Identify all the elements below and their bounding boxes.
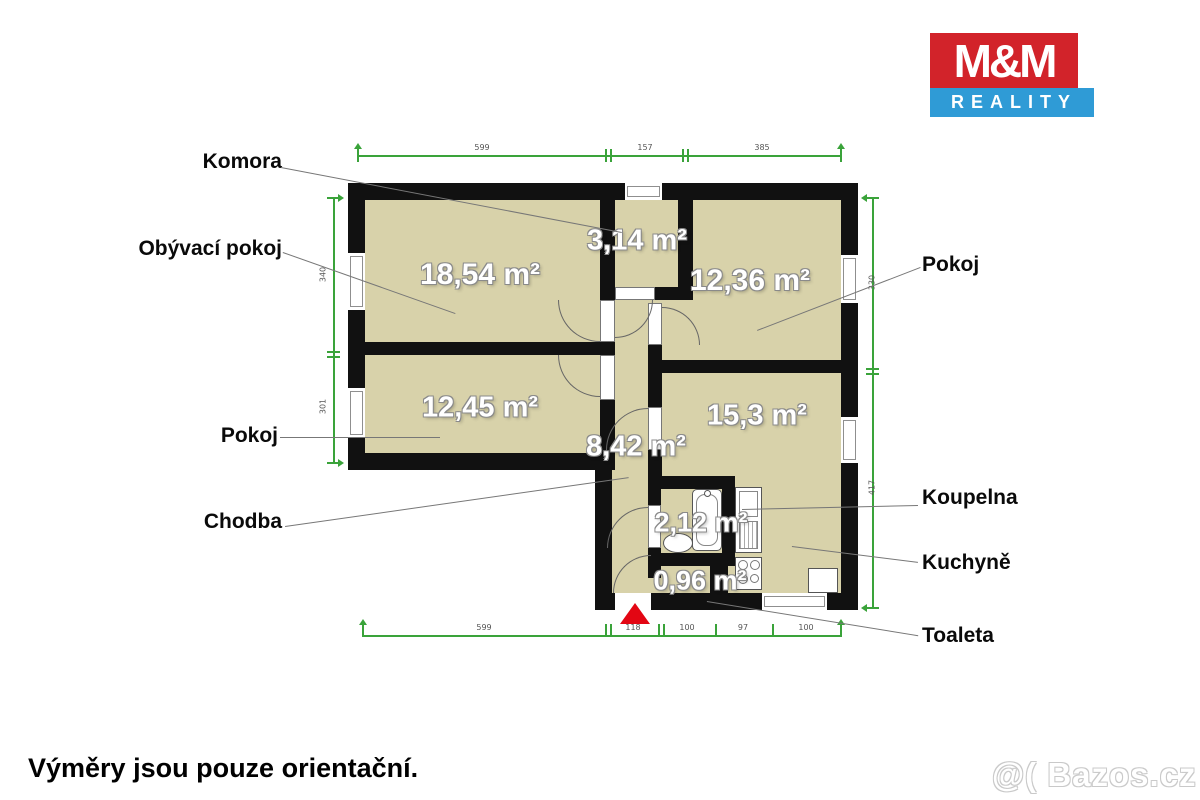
wall-right	[841, 183, 858, 610]
dimension-label: 97	[725, 623, 761, 632]
dimension-tick	[682, 149, 684, 162]
dimension-label: 157	[627, 143, 663, 152]
area-label-kuchyne: 15,3 m²	[707, 400, 807, 433]
dimension-line	[333, 197, 335, 462]
leader-line-chodba	[285, 477, 629, 527]
window-frame	[350, 391, 363, 435]
area-label-pokoj-right: 12,36 m²	[690, 264, 810, 298]
disclaimer-text: Výměry jsou pouze orientační.	[28, 753, 418, 784]
door-leaf-living	[600, 300, 615, 342]
dimension-label: 417	[868, 473, 877, 503]
window-kitchen-right	[841, 417, 858, 463]
window-frame	[764, 596, 825, 607]
dimension-line	[872, 197, 874, 607]
room-label-obyvaci-pokoj: Obývací pokoj	[96, 237, 282, 261]
dimension-tick	[715, 624, 717, 637]
room-label-toaleta: Toaleta	[922, 624, 994, 648]
dimension-tick	[605, 149, 607, 162]
stove-burner	[750, 560, 760, 570]
area-label-obyvaci-pokoj: 18,54 m²	[420, 258, 540, 292]
dimension-tick	[327, 351, 340, 353]
wall-pokoj-kitchen-divider	[662, 360, 841, 373]
window-pokoj-left	[348, 388, 365, 438]
dimension-tick	[866, 607, 879, 609]
window-frame	[350, 256, 363, 307]
door-leaf-pokoj-left	[600, 355, 615, 400]
wall-bath-top	[648, 476, 735, 489]
dimension-tick	[610, 624, 612, 637]
dimension-tick	[772, 624, 774, 637]
dimension-label: 118	[615, 623, 651, 632]
dimension-tick	[840, 624, 842, 637]
window-kitchen-bottom	[762, 593, 827, 610]
room-label-koupelna: Koupelna	[922, 486, 1018, 510]
arrow-icon	[338, 194, 344, 202]
dimension-tick	[327, 356, 340, 358]
area-label-pokoj-left: 12,45 m²	[422, 392, 538, 425]
logo-reality: REALITY	[930, 88, 1094, 117]
dimension-label: 340	[319, 260, 328, 290]
dimension-label: 599	[462, 143, 502, 152]
dimension-tick	[663, 624, 665, 637]
dimension-tick	[605, 624, 607, 637]
room-label-komora: Komora	[102, 150, 282, 174]
leader-line-pokoj-left	[280, 437, 440, 438]
arrow-icon	[837, 143, 845, 149]
wall-bath-left-a	[648, 489, 661, 505]
wall-top	[348, 183, 858, 200]
appliance	[808, 568, 838, 593]
dimension-tick	[866, 373, 879, 375]
arrow-icon	[354, 143, 362, 149]
wall-living-pokoj-divider	[365, 342, 615, 355]
watermark: @( Bazos.cz	[992, 756, 1197, 794]
dimension-tick	[866, 368, 879, 370]
room-label-pokoj-left: Pokoj	[102, 424, 278, 448]
area-label-toaleta: 0,96 m²	[653, 566, 746, 597]
room-label-kuchyne: Kuchyně	[922, 551, 1011, 575]
window-frame	[843, 420, 856, 460]
room-label-pokoj-right: Pokoj	[922, 253, 979, 277]
floorplan-page: M&M REALITY	[0, 0, 1200, 800]
area-label-chodba: 8,42 m²	[586, 431, 686, 464]
window-komora	[625, 183, 662, 200]
dimension-label: 100	[788, 623, 824, 632]
dimension-label: 301	[319, 392, 328, 422]
arrow-icon	[359, 619, 367, 625]
dimension-tick	[362, 624, 364, 637]
dimension-label: 330	[868, 268, 877, 298]
dimension-line	[362, 635, 840, 637]
dimension-label: 599	[464, 623, 504, 632]
entrance-marker	[620, 603, 650, 624]
dimension-tick	[687, 149, 689, 162]
dimension-line	[357, 155, 840, 157]
dimension-tick	[840, 149, 842, 162]
wall-chodba-kitchen-a	[648, 345, 662, 407]
dimension-label: 385	[744, 143, 780, 152]
wall-bath-bottom	[648, 553, 735, 566]
room-label-chodba: Chodba	[102, 510, 282, 534]
dimension-tick	[357, 149, 359, 162]
dimension-tick	[610, 149, 612, 162]
dimension-label: 100	[669, 623, 705, 632]
area-label-koupelna: 2,12 m²	[654, 508, 747, 539]
window-frame	[627, 186, 660, 197]
dimension-tick	[658, 624, 660, 637]
logo-mm: M&M	[930, 33, 1078, 88]
arrow-icon	[338, 459, 344, 467]
dimension-tick	[866, 197, 879, 199]
bathtub-faucet	[704, 490, 711, 497]
arrow-icon	[861, 194, 867, 202]
door-leaf-komora	[615, 287, 655, 300]
arrow-icon	[861, 604, 867, 612]
stove-burner	[750, 574, 759, 583]
wall-bottom-left	[348, 453, 615, 470]
